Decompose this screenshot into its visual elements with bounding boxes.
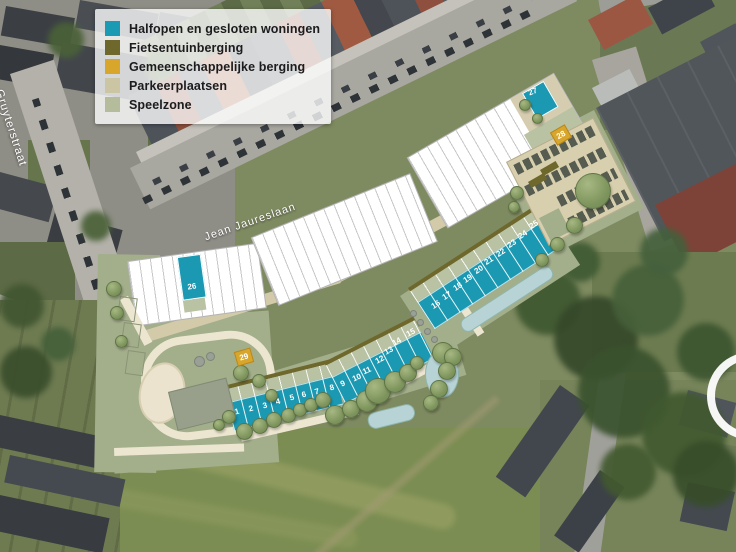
existing-block-segment <box>252 174 437 304</box>
tree-icon <box>535 253 549 267</box>
legend-swatch <box>105 40 120 55</box>
legend-swatch <box>105 78 120 93</box>
photo-tree <box>41 327 75 361</box>
tree-icon <box>438 362 456 380</box>
legend-swatch <box>105 59 120 74</box>
tree-icon <box>213 419 225 431</box>
stepping-stone <box>424 328 431 335</box>
legend-item: Speelzone <box>105 97 321 112</box>
woods <box>673 441 736 507</box>
woods <box>612 264 684 336</box>
tree-icon <box>532 113 543 124</box>
legend-item: Gemeenschappelijke berging <box>105 59 321 74</box>
lot-number-26: 26 <box>187 282 197 291</box>
legend-label: Gemeenschappelijke berging <box>129 60 305 74</box>
tree-icon <box>106 281 122 297</box>
legend-label: Fietsentuinberging <box>129 41 243 55</box>
woods <box>600 444 656 500</box>
stepping-stone <box>431 336 438 343</box>
legend-label: Speelzone <box>129 98 192 112</box>
play-structure <box>206 352 215 361</box>
play-structure <box>194 356 205 367</box>
tree-icon <box>233 365 249 381</box>
stepping-stone <box>417 319 424 326</box>
lot-26-garden <box>183 298 206 313</box>
tree-icon <box>266 412 282 428</box>
legend-item: Halfopen en gesloten woningen <box>105 21 321 36</box>
legend-item: Parkeerplaatsen <box>105 78 321 93</box>
tree-icon <box>236 423 253 440</box>
legend-swatch <box>105 97 120 112</box>
legend-label: Halfopen en gesloten woningen <box>129 22 320 36</box>
tree-icon <box>566 217 583 234</box>
stepping-stone <box>410 310 417 317</box>
site-plan-aerial-map: Gruyterstraat Jean Jaureslaan Halfopen e… <box>0 0 736 552</box>
legend: Halfopen en gesloten woningenFietsentuin… <box>95 9 331 124</box>
tree-icon <box>519 99 531 111</box>
lot-26-parcel <box>177 254 207 301</box>
tree-icon <box>423 395 439 411</box>
legend-swatch <box>105 21 120 36</box>
photo-tree <box>0 284 44 328</box>
legend-item: Fietsentuinberging <box>105 40 321 55</box>
legend-label: Parkeerplaatsen <box>129 79 227 93</box>
parking-space-outline <box>125 350 146 376</box>
tree-icon <box>575 173 611 209</box>
photo-tree <box>81 211 111 241</box>
tree-icon <box>110 306 124 320</box>
tree-icon <box>252 374 266 388</box>
tree-icon <box>550 237 565 252</box>
tree-icon <box>508 201 520 213</box>
tree-icon <box>510 186 524 200</box>
tree-icon <box>115 335 128 348</box>
photo-tree <box>48 22 84 58</box>
tree-icon <box>410 356 424 370</box>
woods <box>640 228 688 276</box>
